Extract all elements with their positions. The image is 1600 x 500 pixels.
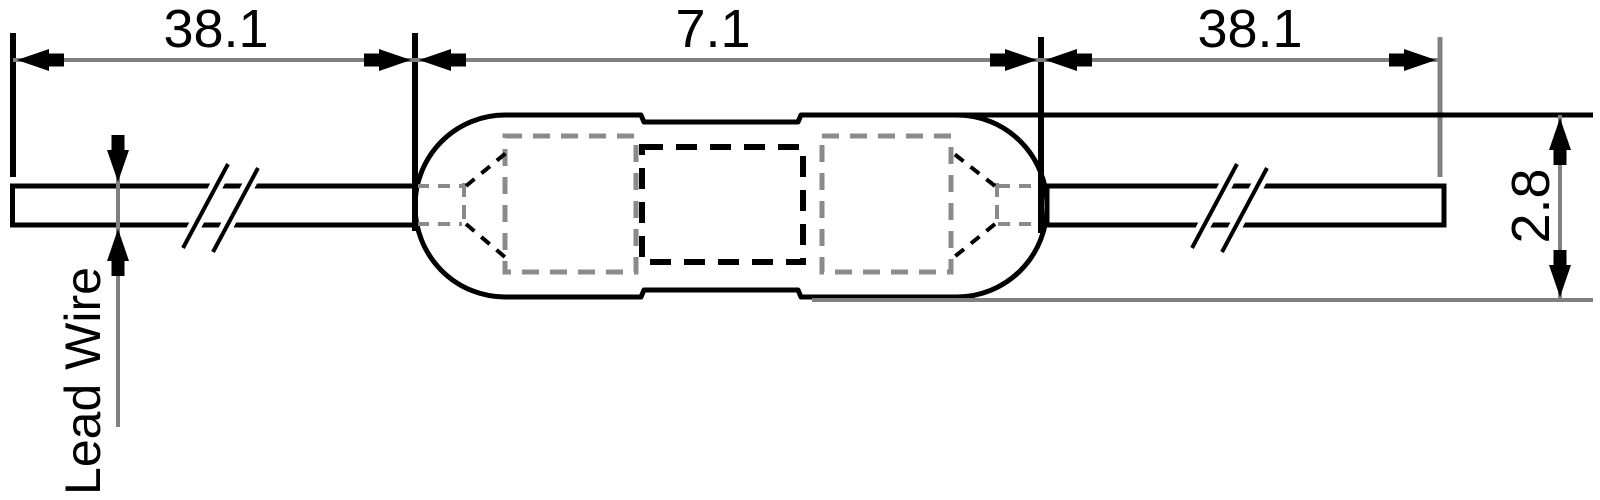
dim-label-body-diameter: 2.8 [1501,168,1561,243]
dim-arrow [364,49,411,71]
dim-label-lead-left: 38.1 [163,0,268,59]
dim-arrow [990,49,1037,71]
lead-wire-right [1047,164,1444,252]
lead-wire-left [13,164,416,252]
callout-arrow [107,135,129,182]
dimension-drawing-svg: 38.1 7.1 38.1 2.8 Lead Wire [0,0,1600,500]
dim-arrow [1549,118,1571,165]
dim-arrow [17,49,64,71]
dim-arrow [1549,250,1571,297]
dim-label-body-length: 7.1 [675,0,750,59]
dim-arrow [1389,49,1436,71]
dim-arrow [1045,49,1092,71]
dim-arrow [419,49,466,71]
lead-wire-label: Lead Wire [55,267,111,495]
technical-dimension-drawing: 38.1 7.1 38.1 2.8 Lead Wire [0,0,1600,500]
dim-label-lead-right: 38.1 [1197,0,1302,59]
